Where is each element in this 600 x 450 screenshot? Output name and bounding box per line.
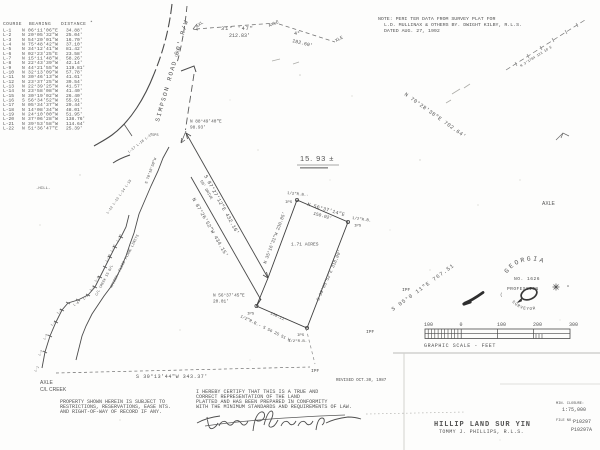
svg-text:AXLE: AXLE xyxy=(40,380,53,386)
svg-text:20.01': 20.01' xyxy=(213,300,229,305)
svg-text:P10297A: P10297A xyxy=(571,427,592,433)
svg-text:-HILL-: -HILL- xyxy=(36,187,50,191)
svg-text:1:75,000: 1:75,000 xyxy=(562,407,586,413)
svg-text:1/2"R.B.: 1/2"R.B. xyxy=(288,339,307,344)
svg-text:COURSE: COURSE xyxy=(3,21,22,27)
svg-text:BEARING: BEARING xyxy=(29,21,51,27)
svg-text:IPS: IPS xyxy=(152,134,158,138)
svg-text:GRAPHIC SCALE - FEET: GRAPHIC SCALE - FEET xyxy=(424,343,496,349)
svg-text:100: 100 xyxy=(424,322,433,328)
svg-text:N 56°37'45"E: N 56°37'45"E xyxy=(213,294,245,299)
svg-text:IPF: IPF xyxy=(311,368,320,374)
svg-text:4°: 4° xyxy=(294,31,300,37)
svg-text:IPS: IPS xyxy=(297,334,305,338)
svg-text:IPF: IPF xyxy=(402,287,411,293)
svg-text:L-22: L-22 xyxy=(3,126,14,132)
svg-text:N 88°49'40"E: N 88°49'40"E xyxy=(190,120,222,125)
svg-text:IPS: IPS xyxy=(285,201,293,205)
svg-text:IPS: IPS xyxy=(247,313,255,317)
svg-text:C/L CREEK: C/L CREEK xyxy=(40,387,67,393)
svg-text:L.D. MULLINAX & OTHERS BY. DWI: L.D. MULLINAX & OTHERS BY. DWIGHT KILBY,… xyxy=(384,22,522,28)
svg-text:212.83': 212.83' xyxy=(229,33,250,39)
svg-text:IPF: IPF xyxy=(366,329,375,335)
svg-text:WITH THE MINIMUM STANDARDS AND: WITH THE MINIMUM STANDARDS AND REQUIREME… xyxy=(196,404,352,410)
svg-text:DISTANCE: DISTANCE xyxy=(61,21,86,27)
svg-text:98.93': 98.93' xyxy=(190,126,206,131)
svg-text:NOTE: PERI TER DATA FROM SURVE: NOTE: PERI TER DATA FROM SURVEY PLAT FOR xyxy=(378,16,495,22)
svg-text:TOMMY J. PHILLIPS, R.L.S.: TOMMY J. PHILLIPS, R.L.S. xyxy=(439,429,524,435)
svg-text:300: 300 xyxy=(569,322,578,328)
svg-text:31° '47": 31° '47" xyxy=(221,26,254,32)
svg-text:NO. 1626: NO. 1626 xyxy=(514,276,540,282)
svg-text:IPS: IPS xyxy=(354,225,362,229)
svg-text:15. 93 ±: 15. 93 ± xyxy=(300,154,334,163)
svg-text:S 30°13'44"W 343.37': S 30°13'44"W 343.37' xyxy=(136,374,208,380)
svg-text:AND RIGHT-OF-WAY OF RECORD IF: AND RIGHT-OF-WAY OF RECORD IF ANY. xyxy=(60,409,162,415)
svg-text:N 51°36'47"E: N 51°36'47"E xyxy=(22,126,58,132)
svg-text:FILE NO.: FILE NO. xyxy=(556,419,573,423)
svg-text:HILLIP LAND SUR YIN: HILLIP LAND SUR YIN xyxy=(434,421,531,429)
svg-text:*: * xyxy=(90,20,93,26)
svg-text:REVISED OCT.30, 1987: REVISED OCT.30, 1987 xyxy=(336,379,387,383)
svg-text:MIN. CLOSURE:: MIN. CLOSURE: xyxy=(556,402,584,406)
svg-text:(: ( xyxy=(500,293,503,298)
svg-text:P10297: P10297 xyxy=(573,419,591,425)
svg-text:100: 100 xyxy=(497,322,506,328)
svg-text:AXLE: AXLE xyxy=(542,201,555,207)
svg-text:200: 200 xyxy=(533,322,542,328)
svg-text:DATED AUG. 27, 1992: DATED AUG. 27, 1992 xyxy=(384,28,440,34)
svg-text:1.71 ACRES: 1.71 ACRES xyxy=(291,242,319,248)
svg-text:0: 0 xyxy=(460,322,463,328)
svg-text:25.39': 25.39' xyxy=(66,126,83,132)
